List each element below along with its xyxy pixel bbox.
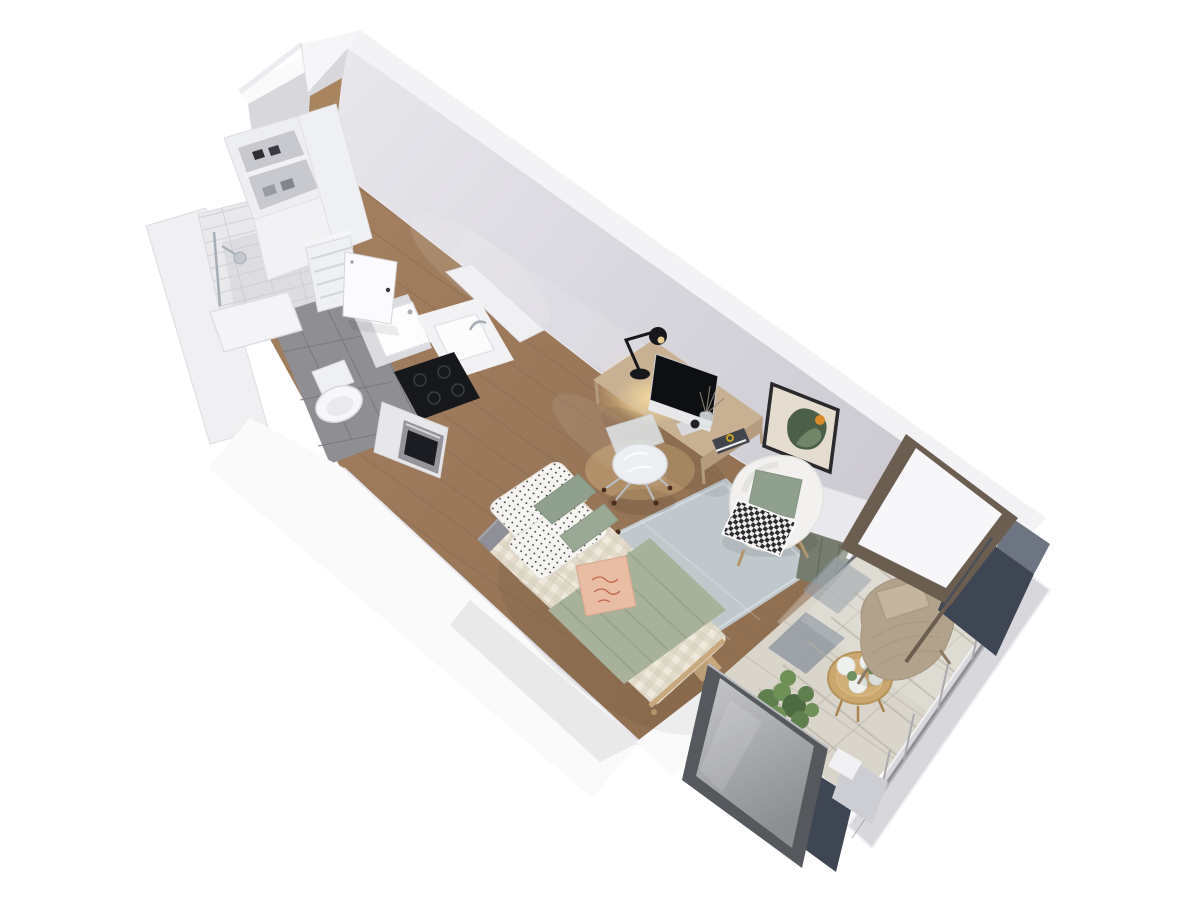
shower-head bbox=[234, 252, 246, 264]
door-handle bbox=[386, 288, 390, 292]
door-hinge bbox=[350, 260, 353, 263]
apartment-scene bbox=[0, 0, 1200, 900]
floorplan-render bbox=[0, 0, 1200, 900]
art-orange-dot bbox=[815, 415, 825, 425]
vase bbox=[700, 412, 712, 427]
bed-leg bbox=[651, 709, 657, 715]
black-bottle bbox=[691, 420, 700, 429]
chair-cushion bbox=[613, 444, 667, 484]
basin-faucet bbox=[408, 310, 413, 315]
pillow-peach bbox=[576, 556, 636, 616]
desk-lamp-head bbox=[649, 327, 667, 345]
chair-shadow bbox=[608, 489, 676, 515]
desk-lamp-bulb bbox=[658, 337, 665, 344]
